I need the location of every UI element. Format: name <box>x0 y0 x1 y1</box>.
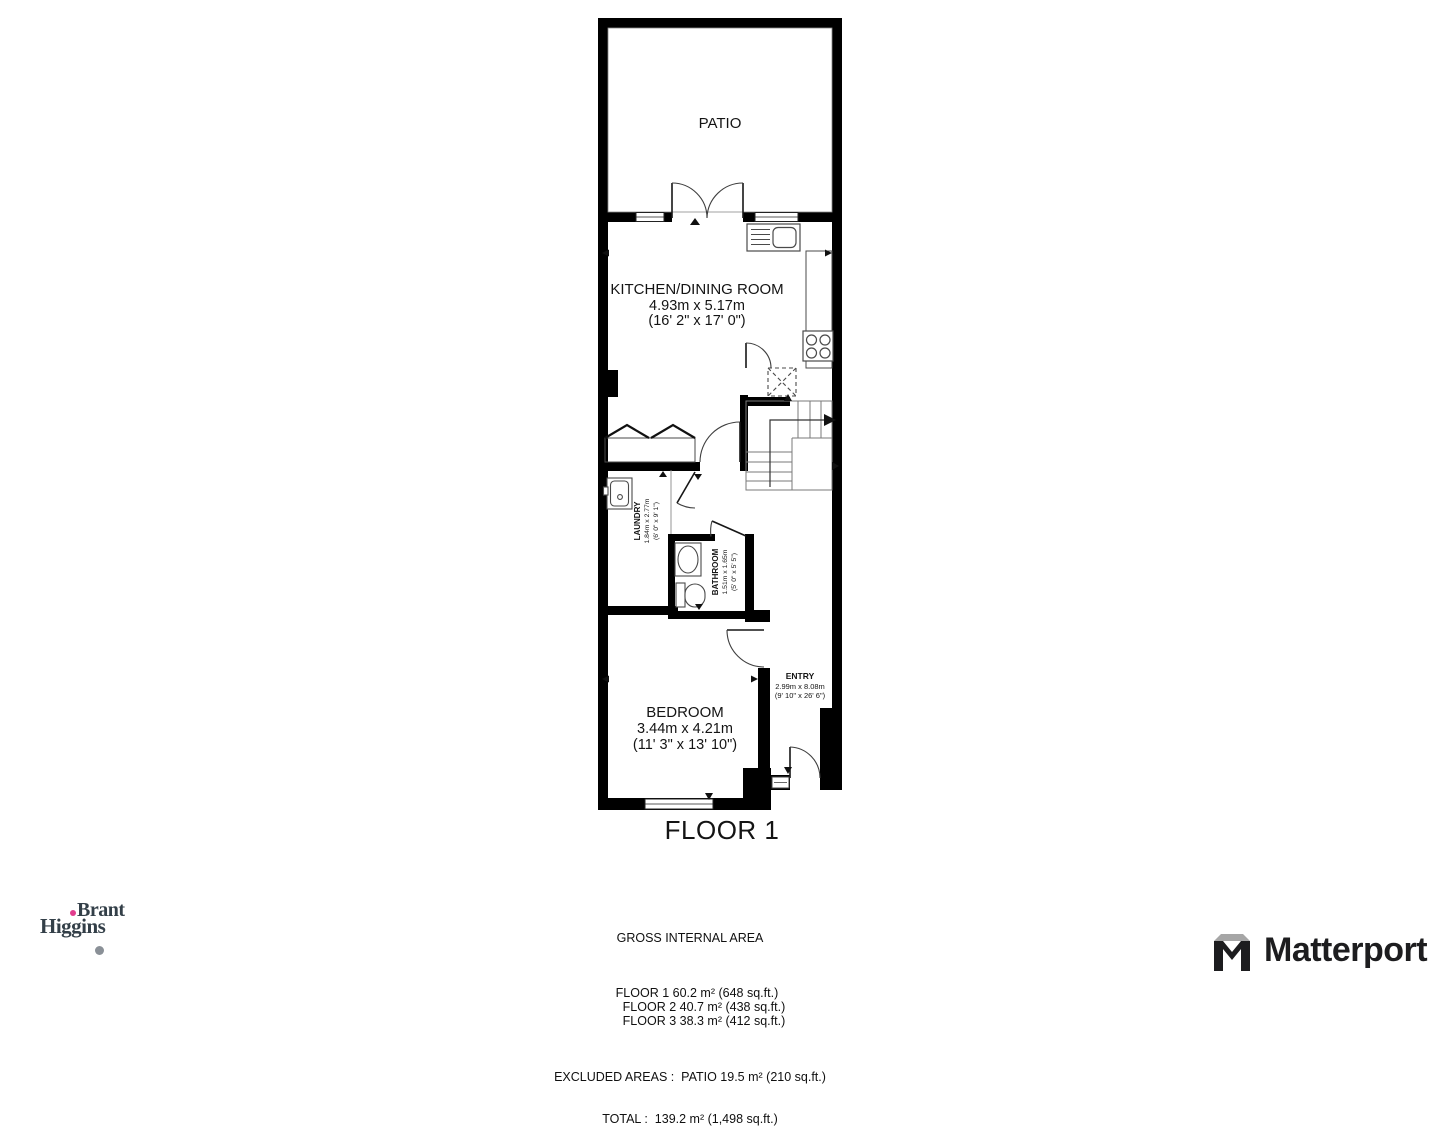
laundry-size-metric: 1.84m x 2.77m <box>644 498 651 543</box>
stair-direction-line <box>770 420 824 487</box>
summary-heading: GROSS INTERNAL AREA <box>250 932 1130 946</box>
summary-floors-line: FLOOR 1 60.2 m² (648 sq.ft.) FLOOR 2 40.… <box>250 974 1130 1044</box>
kitchen-size-imperial: (16' 2" x 17' 0") <box>648 313 745 329</box>
room-entry: ENTRY 2.99m x 8.08m (9' 10" x 26' 6") <box>772 671 826 788</box>
door-arc <box>746 343 771 368</box>
room-patio: PATIO <box>608 28 832 222</box>
area-summary: GROSS INTERNAL AREA FLOOR 1 60.2 m² (648… <box>250 904 1130 1140</box>
provider-name: Matterport <box>1264 933 1427 967</box>
summary-floor-1: FLOOR 1 60.2 m² (648 sq.ft.) <box>616 987 779 1001</box>
agency-pink-dot-icon <box>70 910 76 916</box>
laundry-label: LAUNDRY <box>633 501 642 540</box>
bedroom-size-metric: 3.44m x 4.21m <box>637 721 733 737</box>
kitchen-size-metric: 4.93m x 5.17m <box>649 298 745 314</box>
door-arc <box>700 422 740 462</box>
bathroom-basin <box>675 543 701 576</box>
entry-size-metric: 2.99m x 8.08m <box>775 682 825 691</box>
entry-door-arc <box>790 747 820 778</box>
wardrobe-zigzag <box>605 425 695 462</box>
bathroom-label: BATHROOM <box>711 548 720 595</box>
kitchen-sink <box>747 224 800 251</box>
room-bathroom: BATHROOM 1.51m x 1.65m (5' 0" x 5' 5") <box>675 521 746 607</box>
summary-floor-2: FLOOR 2 40.7 m² (438 sq.ft.) <box>623 1001 786 1015</box>
room-kitchen-dining: KITCHEN/DINING ROOM 4.93m x 5.17m (16' 2… <box>605 224 833 462</box>
summary-excluded-line: EXCLUDED AREAS : PATIO 19.5 m² (210 sq.f… <box>250 1071 1130 1085</box>
window <box>645 799 713 809</box>
door-arc <box>727 630 764 667</box>
bathroom-size-metric: 1.51m x 1.65m <box>722 549 729 594</box>
entry-label: ENTRY <box>786 671 815 681</box>
bathroom-label-group: BATHROOM 1.51m x 1.65m (5' 0" x 5' 5") <box>711 548 738 595</box>
laundry-label-group: LAUNDRY 1.84m x 2.77m (6' 0" x 9' 1") <box>633 498 660 543</box>
french-doors <box>672 183 743 218</box>
agency-name-line2: Higgins <box>40 917 150 935</box>
laundry-size-imperial: (6' 0" x 9' 1") <box>653 502 660 540</box>
entry-size-imperial: (9' 10" x 26' 6") <box>775 691 826 700</box>
matterport-logo-icon <box>1212 933 1252 973</box>
bedroom-label: BEDROOM <box>646 704 724 721</box>
toilet <box>676 583 705 607</box>
provider-logo: Matterport <box>1212 933 1427 960</box>
marker-right-icon <box>751 676 758 683</box>
summary-floor-3: FLOOR 3 38.3 m² (412 sq.ft.) <box>623 1015 786 1029</box>
entry-threshold <box>772 777 789 788</box>
floor-title: FLOOR 1 <box>665 815 780 845</box>
kitchen-label: KITCHEN/DINING ROOM <box>610 281 783 298</box>
bathroom-size-imperial: (5' 0" x 5' 5") <box>731 553 738 591</box>
marker-up-icon <box>690 218 700 225</box>
patio-label: PATIO <box>699 115 742 132</box>
floor-plan-canvas: PATIO <box>0 0 1440 960</box>
laundry-sink <box>604 478 633 509</box>
gray-dot-icon <box>95 946 104 955</box>
appliance-dashed <box>768 368 796 396</box>
door-arc <box>711 521 746 537</box>
staircase <box>746 401 836 490</box>
marker-up-icon <box>659 471 667 477</box>
room-laundry: LAUNDRY 1.84m x 2.77m (6' 0" x 9' 1") <box>604 470 696 543</box>
door-arc <box>677 472 695 508</box>
marker-down-icon <box>694 474 702 480</box>
agency-logo: Brant Higgins <box>40 902 150 946</box>
summary-total-line: TOTAL : 139.2 m² (1,498 sq.ft.) <box>250 1113 1130 1127</box>
bedroom-size-imperial: (11' 3" x 13' 10") <box>633 737 737 753</box>
stove-hob <box>803 331 833 361</box>
